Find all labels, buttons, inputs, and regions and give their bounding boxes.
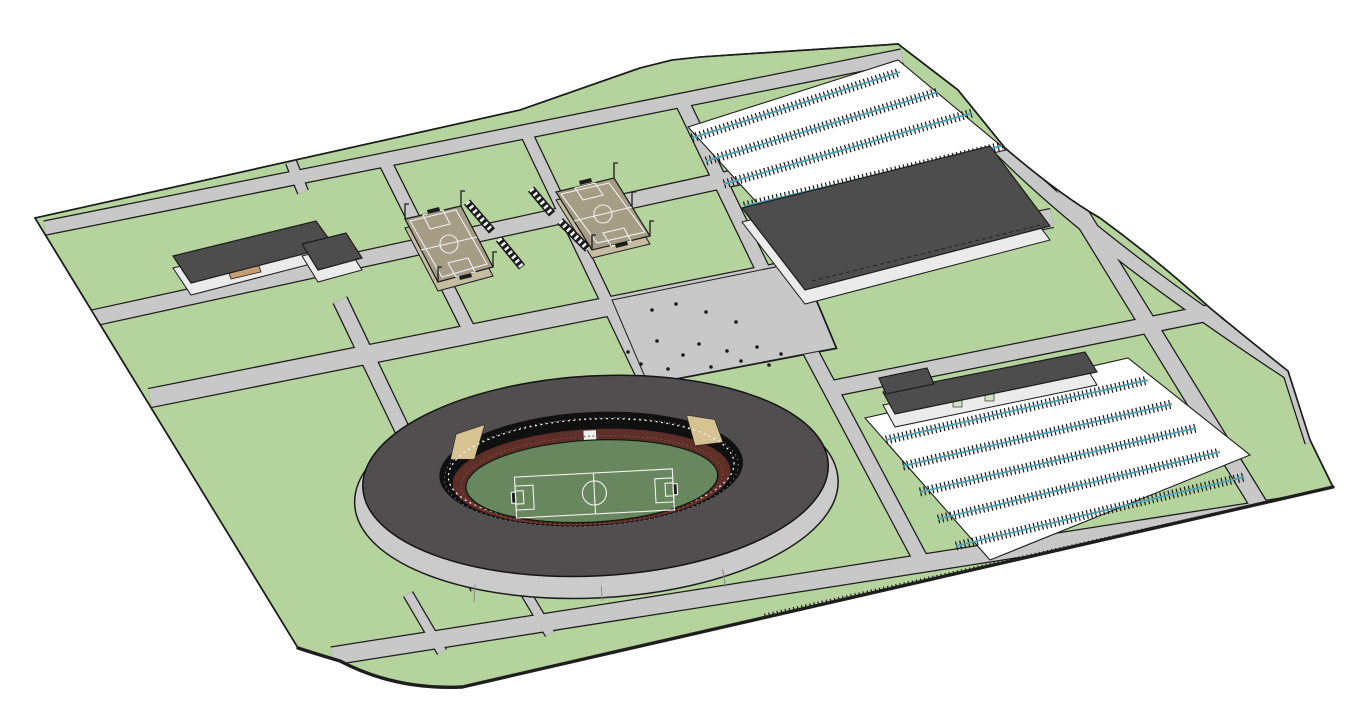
site-plan-svg [0, 0, 1367, 723]
site-plan-render [0, 0, 1367, 723]
pedestrian-dot [725, 349, 729, 353]
pedestrian-dot [709, 365, 713, 369]
pedestrian-dot [674, 302, 678, 306]
pedestrian-dot [734, 320, 738, 324]
pedestrian-dot [739, 359, 743, 363]
pedestrian-dot [639, 362, 643, 366]
pedestrian-dot [704, 310, 708, 314]
pedestrian-dot [666, 367, 670, 371]
pedestrian-dot [697, 342, 701, 346]
pedestrian-dot [650, 308, 654, 312]
pedestrian-dot [767, 363, 771, 367]
pedestrian-dot [779, 352, 783, 356]
pedestrian-dot [626, 350, 630, 354]
pedestrian-dot [681, 353, 685, 357]
pedestrian-dot [655, 339, 659, 343]
pedestrian-dot [755, 345, 759, 349]
